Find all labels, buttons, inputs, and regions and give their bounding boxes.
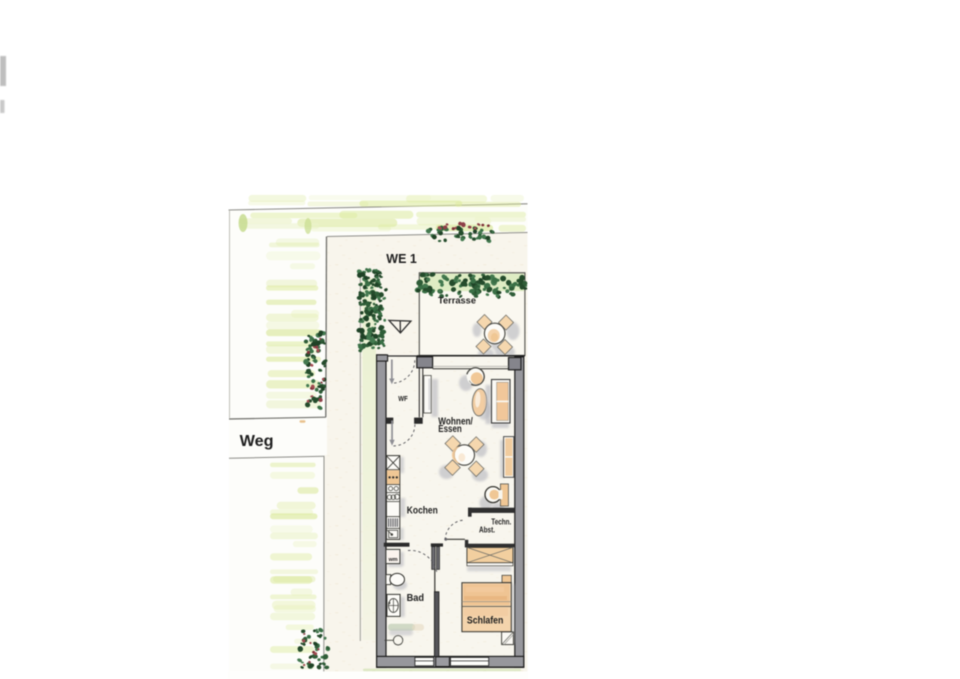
svg-text:Abst.: Abst.	[479, 525, 495, 534]
svg-text:wm: wm	[388, 557, 398, 563]
svg-text:Terrasse: Terrasse	[438, 295, 476, 306]
svg-text:Bad: Bad	[407, 593, 425, 604]
svg-text:Schlafen: Schlafen	[467, 616, 504, 627]
svg-text:WE 1: WE 1	[386, 251, 417, 266]
svg-text:Essen: Essen	[438, 424, 462, 435]
svg-text:Weg: Weg	[240, 433, 274, 450]
svg-text:Kochen: Kochen	[407, 506, 438, 517]
svg-text:WF: WF	[398, 394, 408, 403]
